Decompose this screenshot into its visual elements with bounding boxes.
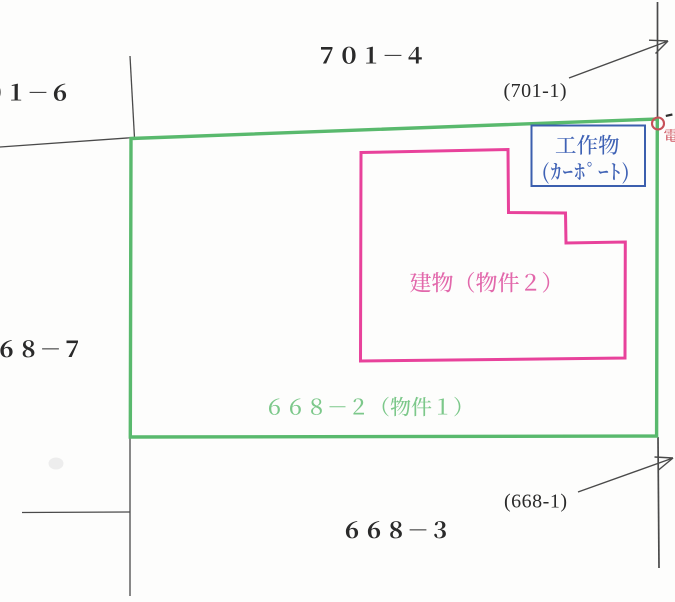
svg-text:(668-1): (668-1)	[504, 491, 567, 513]
svg-text:(701-1): (701-1)	[504, 80, 567, 102]
